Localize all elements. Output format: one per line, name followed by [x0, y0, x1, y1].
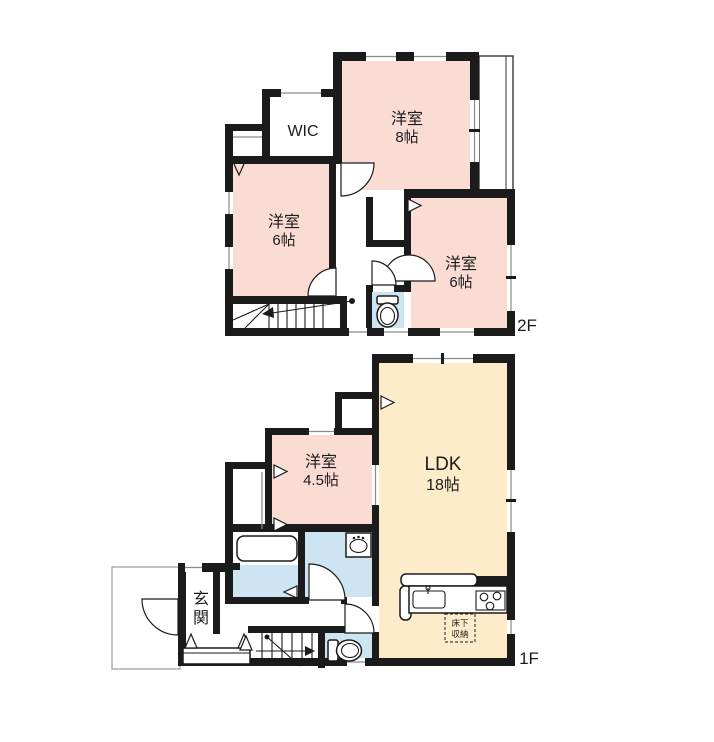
underfloor-line1: 床下 — [451, 618, 469, 628]
window — [506, 470, 516, 532]
label-ldk-size: 18帖 — [426, 476, 460, 494]
window — [185, 563, 202, 572]
window — [225, 192, 233, 214]
window — [506, 245, 516, 311]
toilet-icon-1f — [328, 640, 362, 661]
label-bedroom45-size: 4.5帖 — [303, 472, 339, 489]
label-genkan-char1: 玄 — [193, 590, 209, 608]
label-bedroom8-name: 洋室 — [391, 110, 423, 128]
label-floor-1f: 1F — [519, 649, 539, 668]
window — [349, 328, 367, 336]
window — [225, 247, 233, 269]
label-bedroom45-name: 洋室 — [305, 453, 337, 471]
window — [309, 428, 334, 435]
floorplan-page: 洋室 8帖 WIC 洋室 6帖 洋室 6帖 2F — [0, 0, 714, 742]
window — [413, 353, 473, 364]
window — [414, 52, 446, 61]
window — [384, 328, 408, 336]
label-bedroom8-size: 8帖 — [395, 129, 418, 146]
label-bedroom6r-name: 洋室 — [445, 255, 477, 273]
label-wic: WIC — [287, 123, 318, 140]
label-bedroom6l-name: 洋室 — [268, 213, 300, 231]
window — [366, 52, 396, 61]
floor-2f: 洋室 8帖 WIC 洋室 6帖 洋室 6帖 2F — [225, 52, 537, 336]
window — [469, 100, 480, 162]
label-bedroom6l-size: 6帖 — [272, 232, 295, 249]
stair-direction-arrow — [305, 646, 315, 656]
washbasin-icon — [346, 533, 371, 557]
floorplan-drawing: 洋室 8帖 WIC 洋室 6帖 洋室 6帖 2F — [0, 0, 714, 742]
label-genkan-char2: 関 — [193, 610, 209, 627]
floor-1f: 床下 収納 LDK 18帖 洋室 4.5帖 玄 関 1F — [112, 353, 539, 669]
window — [440, 328, 474, 336]
window — [281, 89, 321, 97]
label-floor-2f: 2F — [517, 316, 537, 335]
label-ldk-name: LDK — [425, 454, 462, 475]
toilet-icon-2f — [377, 296, 398, 327]
label-bedroom6r-size: 6帖 — [449, 274, 472, 291]
door-arc-bedroom8 — [341, 163, 374, 196]
window — [507, 620, 515, 634]
window — [372, 465, 379, 505]
bathtub — [237, 536, 297, 561]
balcony-outline — [479, 56, 513, 196]
underfloor-line2: 収納 — [451, 629, 468, 639]
door-arc-toilet-1f — [345, 604, 374, 633]
